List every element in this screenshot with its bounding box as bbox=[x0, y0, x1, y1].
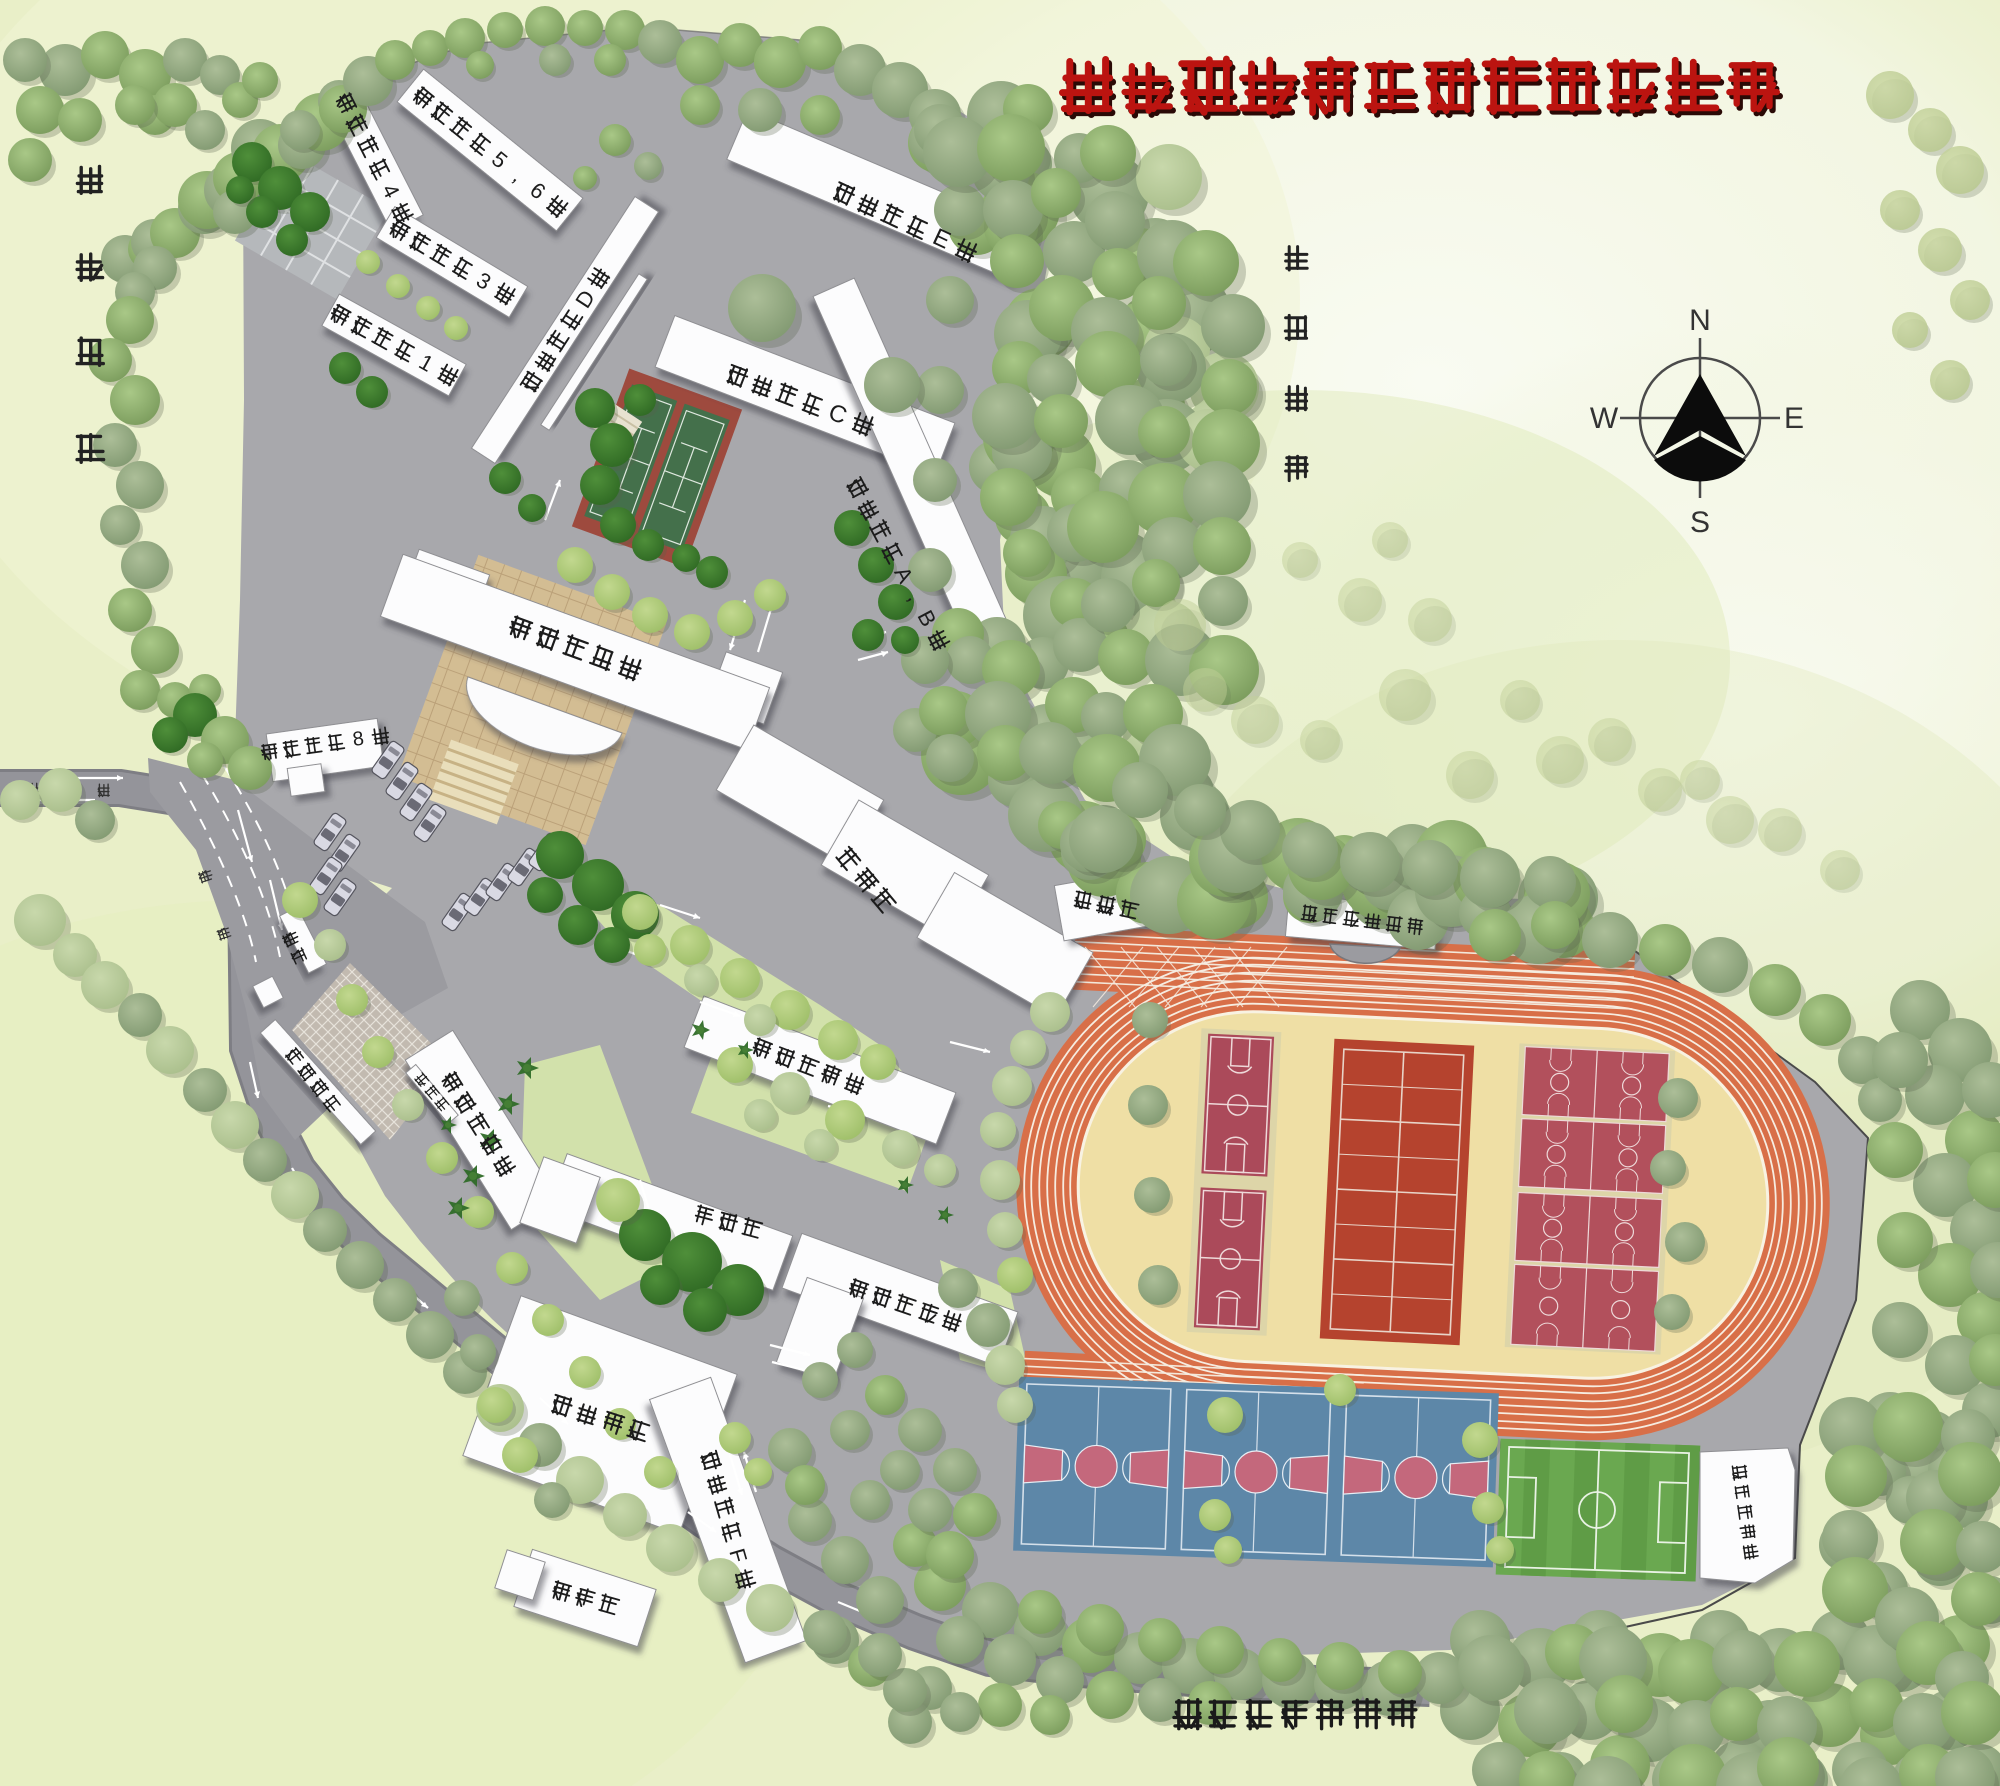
svg-text:N: N bbox=[1689, 304, 1711, 337]
svg-text:E: E bbox=[1784, 402, 1804, 435]
svg-text:S: S bbox=[1690, 506, 1710, 539]
svg-text:W: W bbox=[1590, 402, 1619, 435]
